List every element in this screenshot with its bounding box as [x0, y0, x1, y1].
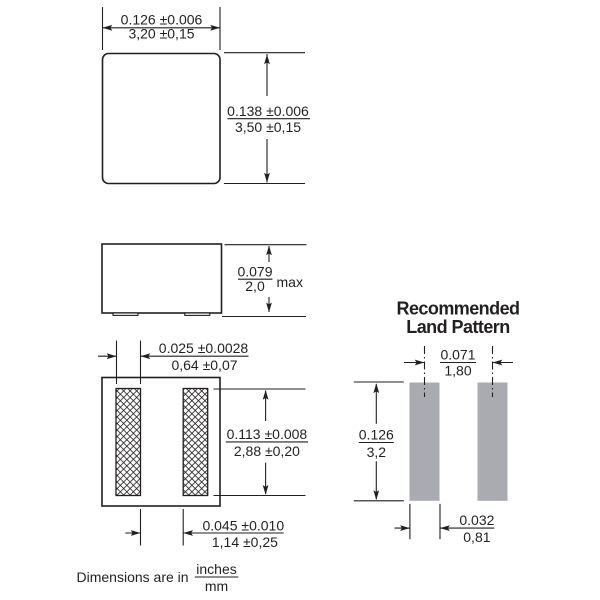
svg-text:mm: mm	[205, 578, 228, 594]
svg-text:0.025 ±0.0028: 0.025 ±0.0028	[159, 340, 249, 356]
svg-text:Land Pattern: Land Pattern	[406, 317, 509, 337]
svg-text:3,20 ±0,15: 3,20 ±0,15	[128, 26, 194, 42]
svg-text:inches: inches	[196, 561, 236, 577]
svg-text:0.126: 0.126	[359, 426, 394, 442]
svg-text:1,14 ±0,25: 1,14 ±0,25	[212, 534, 278, 550]
svg-text:Recommended: Recommended	[397, 298, 520, 318]
svg-text:2,0: 2,0	[245, 278, 265, 294]
svg-text:3,2: 3,2	[367, 444, 387, 460]
svg-text:0.138 ±0.006: 0.138 ±0.006	[227, 103, 309, 119]
svg-text:0.032: 0.032	[459, 512, 494, 528]
svg-text:Dimensions are in: Dimensions are in	[77, 569, 189, 585]
svg-text:1,80: 1,80	[444, 362, 471, 378]
svg-text:0.113 ±0.008: 0.113 ±0.008	[227, 426, 308, 442]
svg-text:3,50 ±0,15: 3,50 ±0,15	[235, 119, 301, 135]
svg-text:0.045 ±0.010: 0.045 ±0.010	[202, 518, 284, 534]
svg-text:max: max	[277, 274, 303, 290]
svg-text:2,88 ±0,20: 2,88 ±0,20	[234, 443, 300, 459]
svg-text:0,64 ±0,07: 0,64 ±0,07	[171, 357, 237, 373]
svg-text:0,81: 0,81	[463, 529, 490, 545]
svg-text:0.071: 0.071	[440, 347, 475, 363]
